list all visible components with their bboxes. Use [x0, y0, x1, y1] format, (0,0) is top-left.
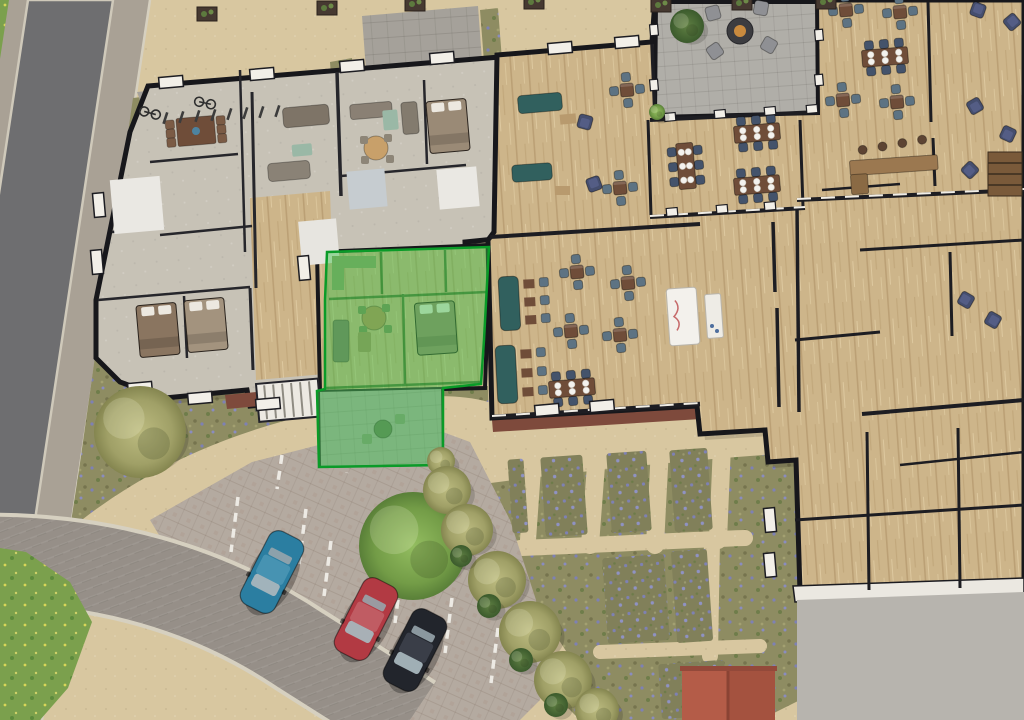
chair: [602, 184, 612, 194]
chair: [628, 329, 638, 339]
long-table-6: [667, 142, 706, 191]
canopy-light: [511, 651, 522, 662]
canopy-dark: [657, 111, 663, 117]
chair: [568, 396, 578, 406]
plate: [687, 176, 694, 183]
canopy-dark: [138, 427, 170, 459]
plate: [739, 127, 746, 134]
canopy: [477, 594, 501, 618]
plant: [663, 1, 668, 6]
planter-box: [524, 0, 544, 9]
canopy-dark: [555, 704, 563, 712]
wall-pier: [666, 208, 678, 217]
plate: [767, 177, 774, 184]
chair: [753, 193, 763, 203]
canopy-light: [540, 658, 566, 684]
chair: [571, 254, 581, 264]
wall-pier: [650, 24, 659, 36]
chair: [864, 40, 874, 50]
plate: [753, 126, 760, 133]
canopy-light: [546, 696, 557, 707]
chair: [551, 371, 561, 381]
planter-box: [816, 0, 836, 9]
canopy-dark: [488, 605, 496, 613]
chair: [751, 167, 761, 177]
plant: [409, 1, 415, 7]
chair: [768, 192, 778, 202]
canopy-light: [430, 451, 443, 464]
plate: [768, 184, 775, 191]
chair: [894, 0, 904, 4]
chair: [609, 86, 619, 96]
plate: [882, 57, 889, 64]
canopy-dark: [520, 659, 528, 667]
chair: [736, 116, 746, 126]
garden-path: [528, 455, 534, 540]
chair: [896, 20, 906, 30]
plate: [740, 186, 747, 193]
bay-window: [92, 193, 105, 218]
canopy: [450, 545, 472, 567]
plate: [582, 380, 589, 387]
planter-box: [405, 0, 425, 11]
plant: [201, 11, 207, 17]
canopy-dark: [466, 527, 484, 545]
plate: [678, 149, 685, 156]
canopy-light: [479, 597, 490, 608]
canopy-light: [452, 548, 462, 558]
bay-window: [548, 41, 573, 54]
chair: [695, 175, 705, 185]
chair: [579, 325, 589, 335]
chair: [905, 96, 915, 106]
plate: [895, 49, 902, 56]
chair: [624, 291, 634, 301]
chair: [566, 370, 576, 380]
canopy-dark: [562, 677, 582, 697]
chair: [753, 141, 763, 151]
chair: [837, 82, 847, 92]
garden-bed: [602, 554, 670, 644]
canopy-light: [474, 558, 500, 584]
chair: [881, 65, 891, 75]
plate: [896, 56, 903, 63]
chair: [602, 331, 612, 341]
bay-window: [297, 256, 310, 281]
wall-pier: [815, 74, 824, 86]
shuffleboard-table: [666, 287, 723, 346]
chair: [842, 18, 852, 28]
garden-path: [655, 448, 660, 545]
chair: [669, 177, 679, 187]
chair: [866, 66, 876, 76]
canopy-dark: [496, 577, 516, 597]
pillow: [158, 305, 172, 315]
wall-pier: [714, 110, 726, 119]
chair: [668, 162, 678, 172]
bay-window: [340, 59, 365, 72]
plate: [685, 148, 692, 155]
garden-path: [590, 452, 597, 545]
canopy: [670, 9, 704, 43]
chair: [610, 279, 620, 289]
garden-bed: [540, 455, 587, 538]
teal-sofa: [517, 92, 562, 114]
bay-window: [250, 67, 275, 80]
coffee-table: [292, 143, 313, 157]
sofa: [267, 160, 310, 182]
canopy: [544, 693, 568, 717]
chair: [738, 194, 748, 204]
pillow: [431, 102, 445, 112]
long-table-6: [733, 114, 782, 153]
chair: [614, 170, 624, 180]
plate: [881, 50, 888, 57]
chair: [616, 196, 626, 206]
canopy-light: [673, 13, 688, 28]
plate: [569, 388, 576, 395]
plate: [583, 387, 590, 394]
plant: [321, 5, 327, 11]
chair: [839, 108, 849, 118]
planter-box: [732, 0, 752, 10]
canopy: [649, 104, 665, 120]
chair: [896, 64, 906, 74]
double-bed: [426, 98, 470, 153]
garden-bed: [606, 451, 651, 534]
chair: [693, 145, 703, 155]
planter-box: [651, 0, 671, 12]
chair: [751, 115, 761, 125]
coffee-table: [382, 109, 399, 130]
canopy: [94, 386, 186, 478]
double-bed: [184, 297, 228, 352]
canopy-light: [428, 472, 450, 494]
pillow: [448, 101, 462, 111]
chair: [840, 0, 850, 2]
bay-window: [763, 508, 776, 533]
bay-window: [90, 250, 103, 275]
chair: [694, 160, 704, 170]
double-bed: [136, 302, 180, 357]
chair: [621, 72, 631, 82]
chair: [628, 182, 638, 192]
plate: [767, 125, 774, 132]
bay-window: [159, 75, 184, 88]
bay-window: [430, 51, 455, 64]
chair: [879, 98, 889, 108]
chair: [565, 313, 575, 323]
chair: [585, 266, 595, 276]
garden-path: [718, 445, 722, 540]
chair: [573, 280, 583, 290]
planter: [651, 0, 671, 12]
chair: [581, 369, 591, 379]
chair: [553, 327, 563, 337]
wall-pier: [806, 105, 818, 114]
chair: [559, 268, 569, 278]
chair: [614, 317, 624, 327]
plate: [867, 51, 874, 58]
canopy-dark: [460, 555, 468, 563]
canopy-dark: [528, 629, 550, 651]
chair: [567, 339, 577, 349]
garden-path: [600, 646, 760, 652]
pillow: [189, 301, 203, 311]
chair: [882, 8, 892, 18]
armchair: [576, 113, 593, 130]
plate: [740, 134, 747, 141]
plate: [554, 382, 561, 389]
bay-window: [615, 35, 640, 48]
garden-bed: [669, 448, 713, 532]
planter: [524, 0, 544, 9]
long-table-6: [861, 38, 910, 77]
plate: [568, 381, 575, 388]
plant: [209, 10, 214, 15]
planter: [405, 0, 425, 11]
chair: [768, 140, 778, 150]
plant: [736, 0, 742, 6]
plate: [679, 163, 686, 170]
planter: [732, 0, 752, 10]
chair: [854, 4, 864, 14]
long-table-6: [733, 166, 782, 205]
pillow: [141, 306, 155, 316]
planter: [816, 0, 836, 9]
bay-window: [590, 399, 615, 412]
pillow: [206, 300, 220, 310]
canopy-light: [651, 106, 658, 113]
garden-bed: [671, 549, 713, 643]
bay-window: [535, 403, 560, 416]
canopy: [509, 648, 533, 672]
planter: [197, 7, 217, 21]
bay-window: [763, 553, 776, 578]
chair: [908, 6, 918, 16]
bay-window: [188, 391, 213, 404]
canopy-dark: [686, 24, 698, 36]
roof-terrace: [797, 592, 1024, 720]
plate: [686, 162, 693, 169]
sofa: [401, 101, 420, 134]
plate: [555, 389, 562, 396]
site-plan-svg: [0, 0, 1024, 720]
canopy-light: [370, 506, 419, 555]
chair: [891, 84, 901, 94]
planter: [317, 1, 337, 15]
wall-pier: [764, 202, 776, 211]
wall-pier: [815, 29, 824, 41]
bay-window: [256, 397, 281, 410]
site-plan-canvas: [0, 0, 1024, 720]
canopy-light: [579, 694, 599, 714]
plant: [655, 2, 661, 8]
side-table: [555, 186, 570, 195]
plate: [753, 178, 760, 185]
wall-pier: [716, 205, 728, 214]
shed-roof: [680, 666, 777, 720]
plate: [754, 185, 761, 192]
plant: [329, 4, 334, 9]
plate: [754, 133, 761, 140]
plate: [868, 58, 875, 65]
sofa: [282, 104, 330, 128]
chair: [879, 39, 889, 49]
side-table: [560, 113, 577, 124]
wall-pier: [650, 79, 659, 91]
chair: [635, 84, 645, 94]
chair: [893, 110, 903, 120]
chair: [766, 166, 776, 176]
chair: [851, 94, 861, 104]
teal-sofa: [511, 163, 552, 183]
canopy-dark: [410, 541, 448, 579]
chair: [622, 265, 632, 275]
plate: [739, 179, 746, 186]
chair: [667, 147, 677, 157]
chair: [825, 96, 835, 106]
canopy-light: [505, 609, 533, 637]
canopy-dark: [446, 488, 463, 505]
chair: [894, 38, 904, 48]
wall-pier: [764, 107, 776, 116]
canopy-light: [446, 511, 469, 534]
plate: [768, 132, 775, 139]
chair: [636, 277, 646, 287]
chair: [738, 142, 748, 152]
canopy-light: [103, 398, 144, 439]
chair: [736, 168, 746, 178]
chair: [616, 343, 626, 353]
chair: [623, 98, 633, 108]
plate: [680, 177, 687, 184]
